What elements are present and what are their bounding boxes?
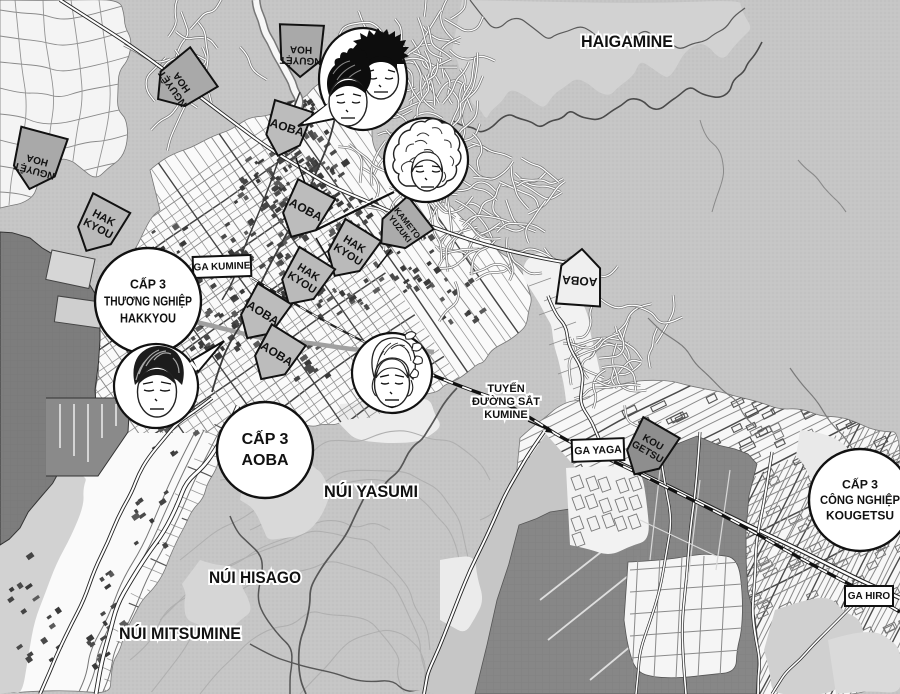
svg-text:CẤP 3: CẤP 3 <box>130 277 166 292</box>
svg-text:NÚI YASUMI: NÚI YASUMI <box>324 482 418 501</box>
svg-text:CẤP 3: CẤP 3 <box>842 476 878 491</box>
svg-text:CẤP 3: CẤP 3 <box>242 429 289 448</box>
svg-text:AOBA: AOBA <box>561 273 598 289</box>
svg-text:AOBA: AOBA <box>241 452 289 469</box>
svg-text:GA HIRO: GA HIRO <box>848 591 891 602</box>
svg-text:KUMINE: KUMINE <box>484 409 527 421</box>
svg-text:HAKKYOU: HAKKYOU <box>120 310 176 325</box>
svg-text:ĐƯỜNG SẮT: ĐƯỜNG SẮT <box>472 395 540 408</box>
svg-text:TUYẾN: TUYẾN <box>487 382 524 395</box>
svg-text:HOA: HOA <box>290 43 313 55</box>
svg-text:HAIGAMINE: HAIGAMINE <box>581 32 673 51</box>
svg-text:GA YAGA: GA YAGA <box>574 444 622 458</box>
svg-text:NÚI HISAGO: NÚI HISAGO <box>209 568 301 587</box>
svg-text:THƯƠNG NGHIỆP: THƯƠNG NGHIỆP <box>104 294 192 309</box>
svg-text:KOUGETSU: KOUGETSU <box>826 509 894 523</box>
svg-text:GA KUMINE: GA KUMINE <box>193 260 251 273</box>
svg-text:NÚI MITSUMINE: NÚI MITSUMINE <box>119 624 241 643</box>
svg-text:CÔNG NGHIỆP: CÔNG NGHIỆP <box>820 492 900 507</box>
